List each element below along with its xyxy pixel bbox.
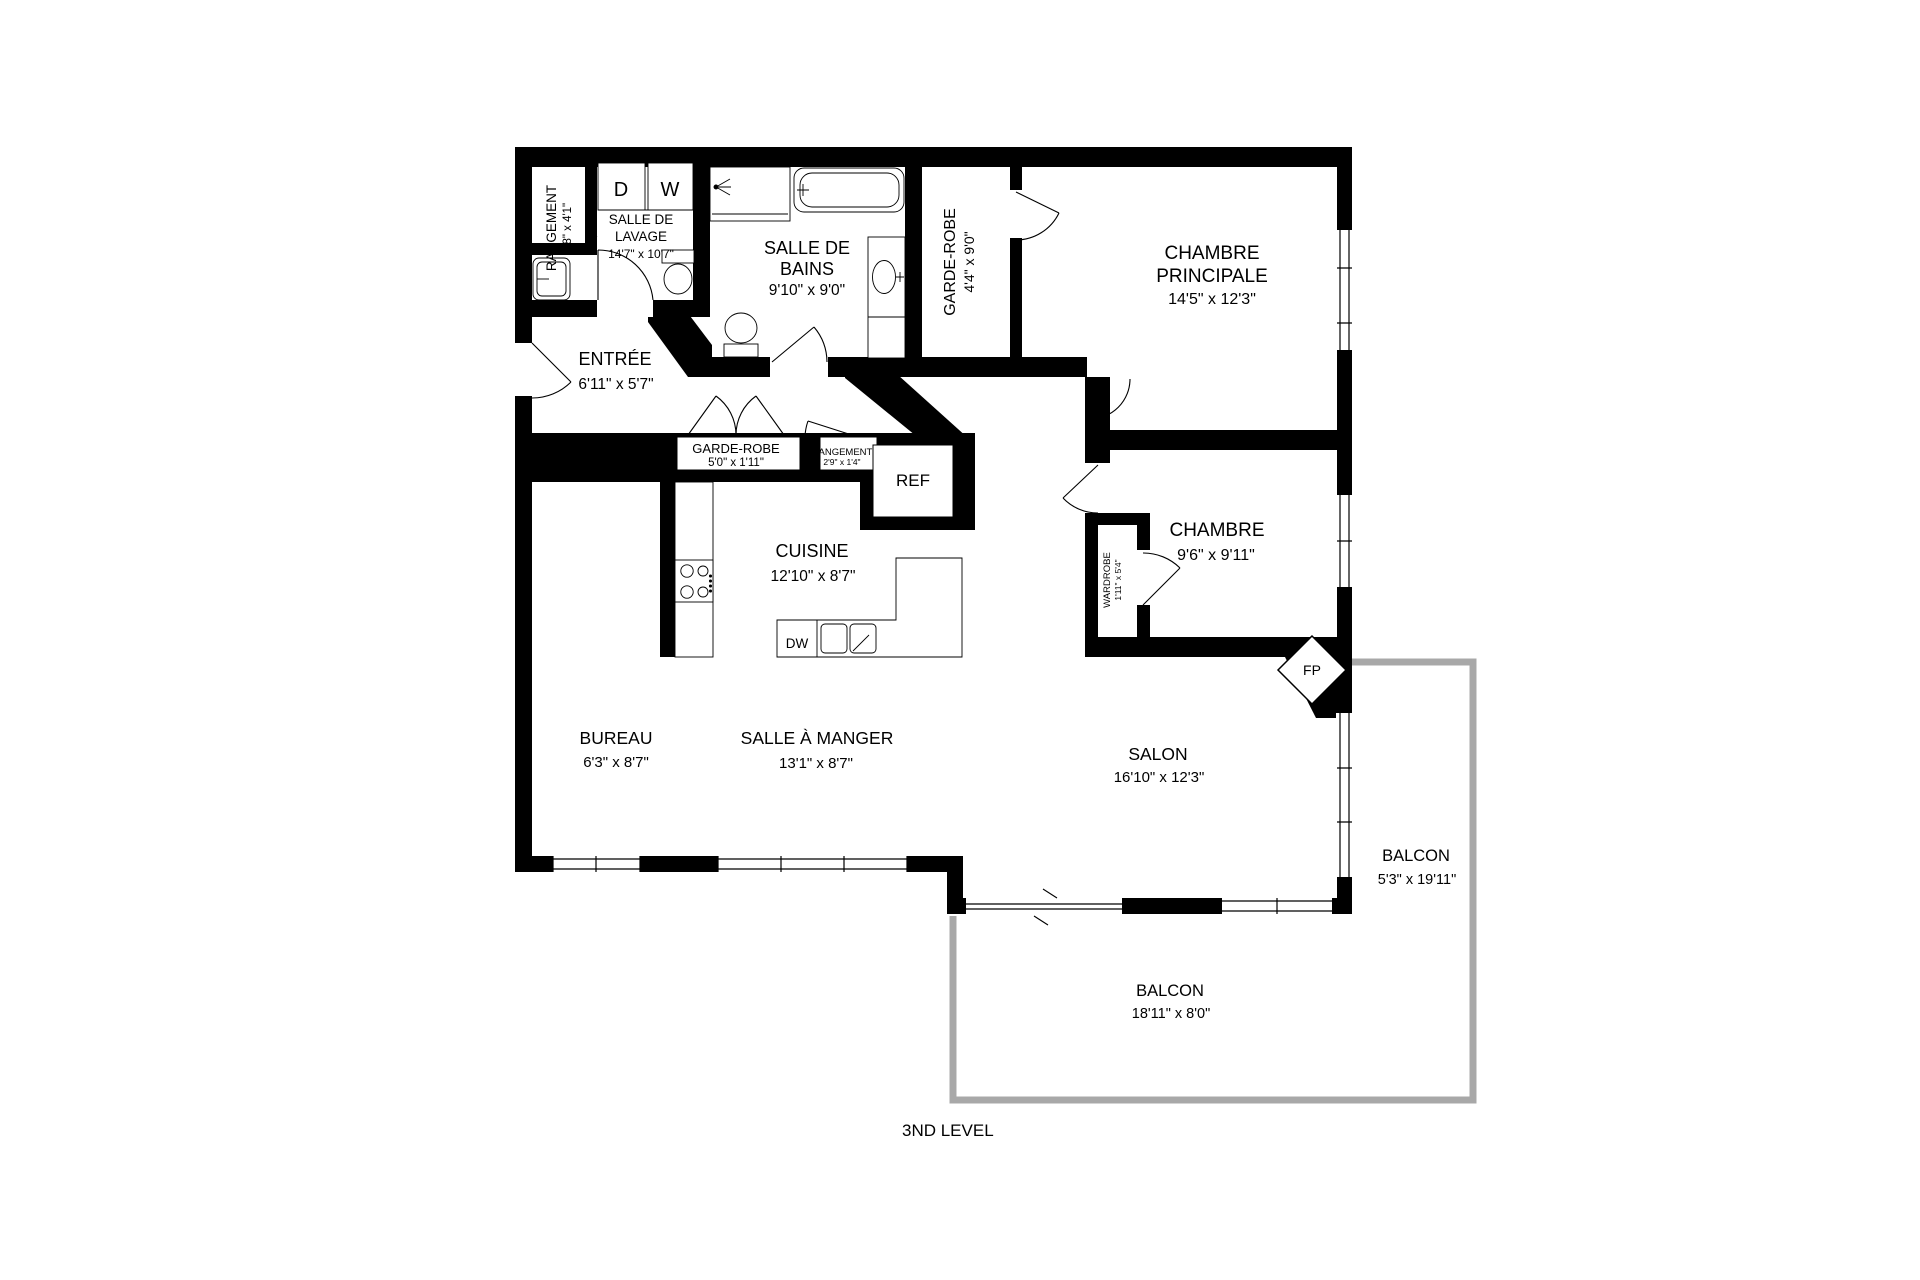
- wall-storage-closet-east: [585, 167, 597, 255]
- room-name: SALON: [1128, 744, 1187, 764]
- wall-bedroom-west-upper: [1085, 430, 1110, 463]
- room-label-wardrobe: WARDROBE 1'11" x 5'4": [1102, 552, 1123, 608]
- opening-wardrobe-door: [1137, 550, 1150, 605]
- room-dims: 14'5" x 12'3": [1168, 291, 1256, 308]
- opening-laundry-door: [597, 300, 653, 317]
- room-dims: 18'11" x 8'0": [1132, 1006, 1210, 1022]
- wall-left-upper: [515, 147, 532, 343]
- wall-bedroom-divider: [1085, 430, 1337, 450]
- room-name: BUREAU: [580, 728, 653, 748]
- room-dims: 2'9" x 1'4": [823, 457, 860, 467]
- room-dims: 6'11" x 5'7": [578, 376, 653, 393]
- dryer-label: D: [614, 179, 628, 201]
- room-name: CHAMBRE: [1169, 520, 1264, 541]
- wall-left-lower: [515, 396, 532, 872]
- room-dims: 4'4" x 9'0": [961, 231, 977, 292]
- opening-bathroom-door: [770, 357, 828, 377]
- wall-hall-north: [708, 357, 1087, 377]
- wall-step: [947, 856, 963, 914]
- wall-kitchen-west: [660, 433, 675, 657]
- floor-level-title: 3ND LEVEL: [902, 1121, 994, 1140]
- opening-walkin-door: [1010, 190, 1022, 238]
- bathroom-toilet-tank: [724, 344, 758, 357]
- shower-stall: [710, 167, 790, 221]
- room-dims: 5'0" x 1'11": [708, 457, 764, 469]
- room-name: GARDE-ROBE: [692, 441, 780, 456]
- bathtub-basin: [800, 173, 899, 207]
- laundry-toilet-bowl: [664, 264, 692, 294]
- room-name: CHAMBRE: [1164, 243, 1259, 264]
- room-dims: 3'8" x 4'1": [562, 203, 574, 253]
- wall-laundry-east: [693, 167, 710, 317]
- room-dims: 16'10" x 12'3": [1114, 769, 1205, 786]
- dishwasher-label: DW: [786, 636, 809, 651]
- room-name: ENTRÉE: [578, 349, 651, 369]
- room-label-laundry: SALLE DE LAVAGE 14'7" x 10'7": [608, 212, 674, 261]
- opening-window-salon-east: [1336, 713, 1353, 877]
- opening-window-master: [1336, 230, 1353, 350]
- room-label-master-bedroom: CHAMBRE PRINCIPALE 14'5" x 12'3": [1156, 243, 1268, 308]
- fireplace-label: FP: [1303, 662, 1321, 678]
- stove: [675, 560, 713, 602]
- room-name: SALLE DE: [609, 212, 674, 227]
- room-name: SALLE DE: [764, 238, 850, 258]
- room-name: PRINCIPALE: [1156, 266, 1268, 287]
- room-name: CUISINE: [775, 541, 848, 561]
- vanity: [868, 237, 905, 358]
- stove-knob: [709, 585, 711, 587]
- room-name: SALLE À MANGER: [741, 728, 894, 748]
- room-name: RANGEMENT: [544, 185, 559, 271]
- room-dims: 5'3" x 19'11": [1378, 872, 1456, 888]
- room-dims: 14'7" x 10'7": [608, 247, 674, 261]
- stove-knob: [709, 580, 711, 582]
- fridge-label: REF: [896, 471, 930, 490]
- room-dims: 9'6" x 9'11": [1177, 547, 1255, 564]
- room-name: BALCON: [1382, 847, 1450, 865]
- vanity-sink: [873, 261, 896, 294]
- opening-sliding-door: [966, 896, 1122, 916]
- bathroom-toilet-bowl: [725, 313, 757, 343]
- room-dims: 9'10" x 9'0": [769, 282, 845, 299]
- wall-master-west: [1085, 377, 1110, 430]
- room-name: LAVAGE: [615, 229, 667, 244]
- room-dims: 1'11" x 5'4": [1113, 559, 1123, 600]
- room-dims: 12'10" x 8'7": [770, 568, 855, 585]
- room-name: WARDROBE: [1102, 552, 1113, 608]
- floor-plan: RANGEMENT 3'8" x 4'1" D W SALLE DE LAVAG…: [0, 0, 1920, 1280]
- room-name: BAINS: [780, 259, 834, 279]
- stove-knob: [709, 575, 711, 577]
- stove-knob: [709, 590, 711, 592]
- floor-plan-page: RANGEMENT 3'8" x 4'1" D W SALLE DE LAVAG…: [0, 0, 1920, 1280]
- room-dims: 13'1" x 8'7": [779, 755, 853, 772]
- room-name: BALCON: [1136, 982, 1204, 1000]
- room-dims: 6'3" x 8'7": [583, 754, 649, 771]
- wall-bathroom-east: [905, 167, 922, 358]
- room-name: GARDE-ROBE: [942, 208, 959, 316]
- washer-label: W: [661, 179, 680, 201]
